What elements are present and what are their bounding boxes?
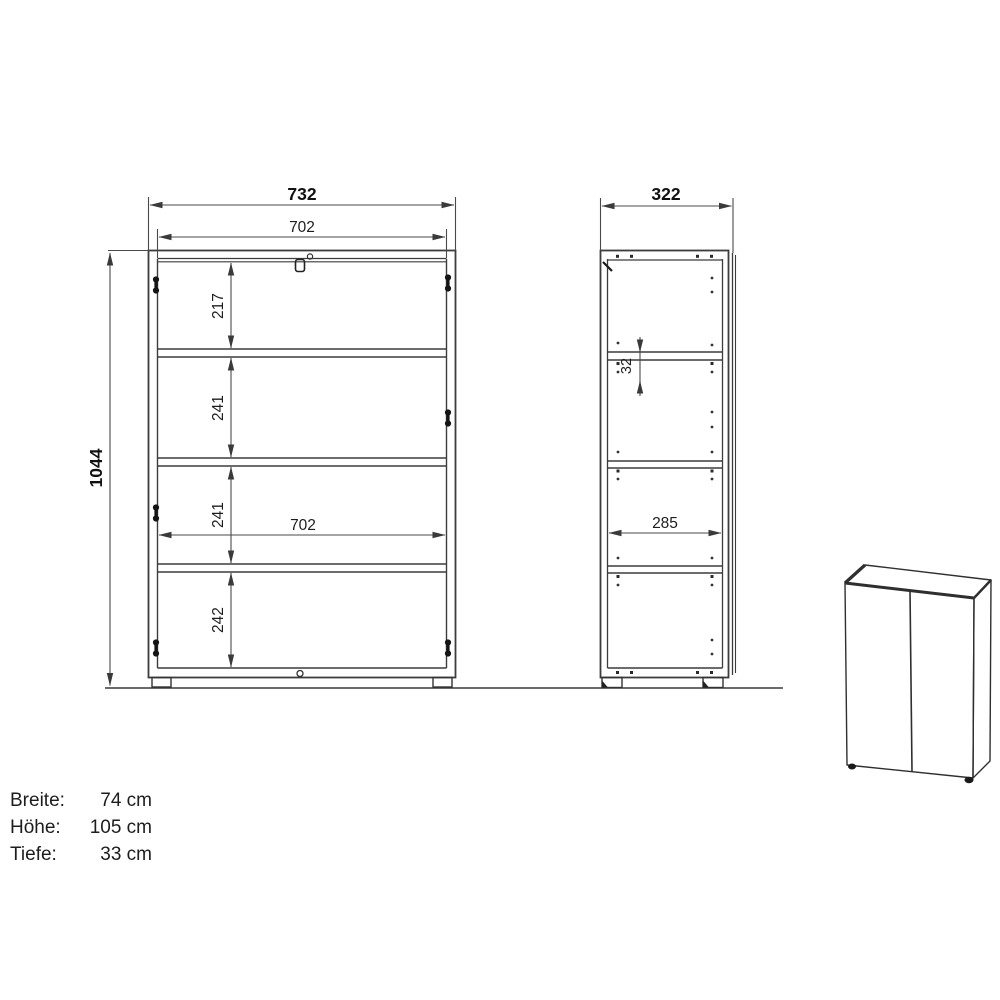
front-shelf-lines — [158, 349, 447, 668]
side-feet — [602, 678, 723, 688]
front-outer-box — [149, 251, 456, 678]
side-outer-box — [601, 251, 729, 678]
dimension-spec-list: Breite: 74 cm Höhe: 105 cm Tiefe: 33 cm — [10, 790, 152, 871]
dim-front-section-1: 217 — [210, 293, 227, 319]
spec-value-breite: 74 cm — [74, 790, 152, 817]
spec-label-hoehe: Höhe: — [10, 817, 74, 844]
dim-front-section-2: 241 — [210, 395, 227, 421]
dim-side-inner-depth: 285 — [652, 515, 678, 532]
screw-marks — [616, 255, 714, 674]
cabinet-3d-view — [845, 565, 991, 783]
dim-front-section-4: 242 — [210, 607, 227, 633]
dim-front-inner-width-top: 702 — [289, 219, 315, 236]
spec-label-breite: Breite: — [10, 790, 74, 817]
side-view-drawing — [601, 251, 736, 688]
front-view-dimensions — [108, 197, 456, 686]
spec-value-tiefe: 33 cm — [74, 844, 152, 871]
dim-side-depth: 322 — [651, 184, 680, 204]
front-feet — [152, 678, 452, 688]
product-dimension-sheet: 732 702 1044 217 241 241 242 702 — [0, 0, 1000, 1000]
dim-front-section-3: 241 — [210, 502, 227, 528]
spec-label-tiefe: Tiefe: — [10, 844, 74, 871]
shelf-pin-holes — [617, 277, 714, 656]
front-view-drawing — [149, 251, 456, 688]
dim-front-inner-width-middle: 702 — [290, 517, 316, 534]
bottom-screw-hole — [297, 671, 303, 677]
dim-side-hole-spacing: 32 — [619, 358, 635, 374]
dim-front-height: 1044 — [86, 448, 106, 487]
dim-front-width: 732 — [287, 184, 316, 204]
lock-icon — [296, 254, 313, 272]
side-shelf-lines — [608, 352, 723, 668]
spec-value-hoehe: 105 cm — [74, 817, 152, 844]
